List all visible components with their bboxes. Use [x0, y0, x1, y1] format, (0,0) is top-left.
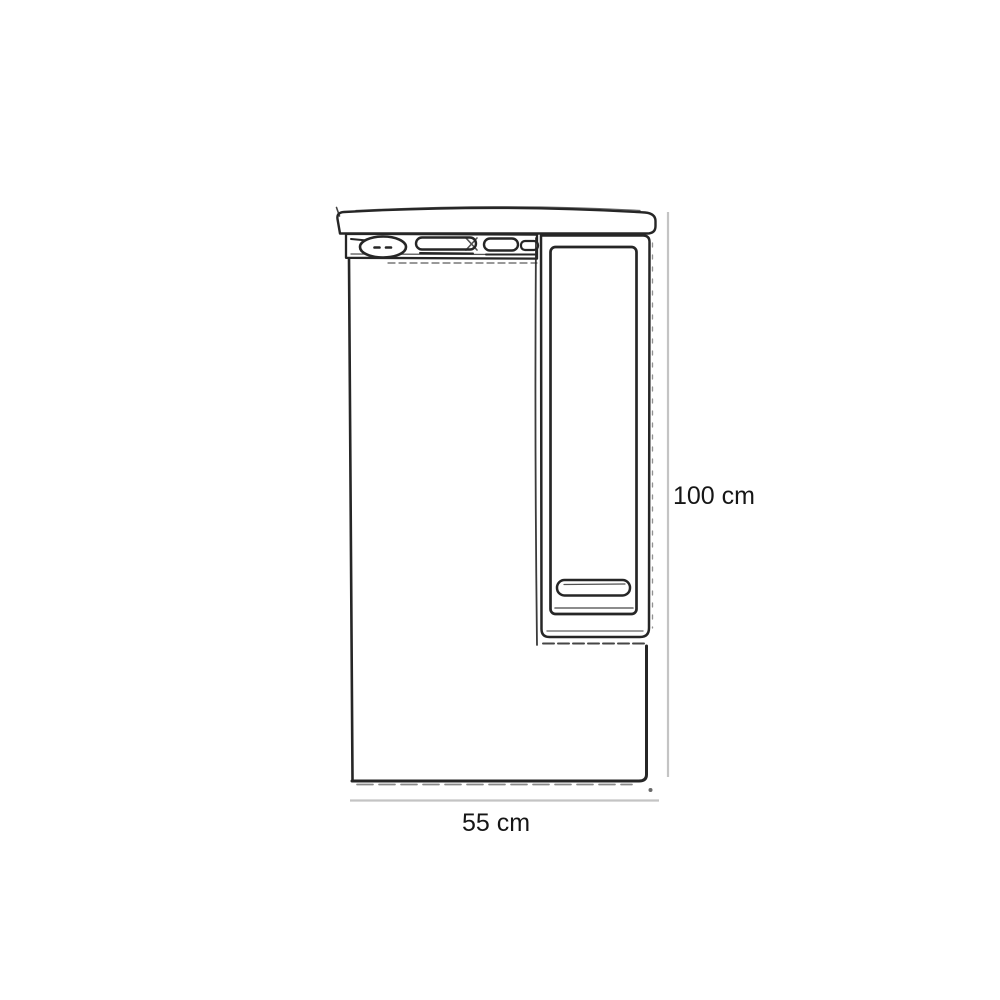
cabinet-line-drawing: [0, 0, 1000, 1000]
light-strip: [346, 234, 538, 263]
top-cornice: [337, 207, 656, 234]
product-dimension-drawing: 100 cm 55 cm: [0, 0, 1000, 1000]
sketch-dot: [649, 788, 653, 792]
mirror-right-edge: [535, 238, 537, 645]
width-dimension-label: 55 cm: [462, 810, 530, 838]
height-dimension-label: 100 cm: [673, 483, 755, 511]
cabinet-door-handle: [557, 580, 630, 596]
